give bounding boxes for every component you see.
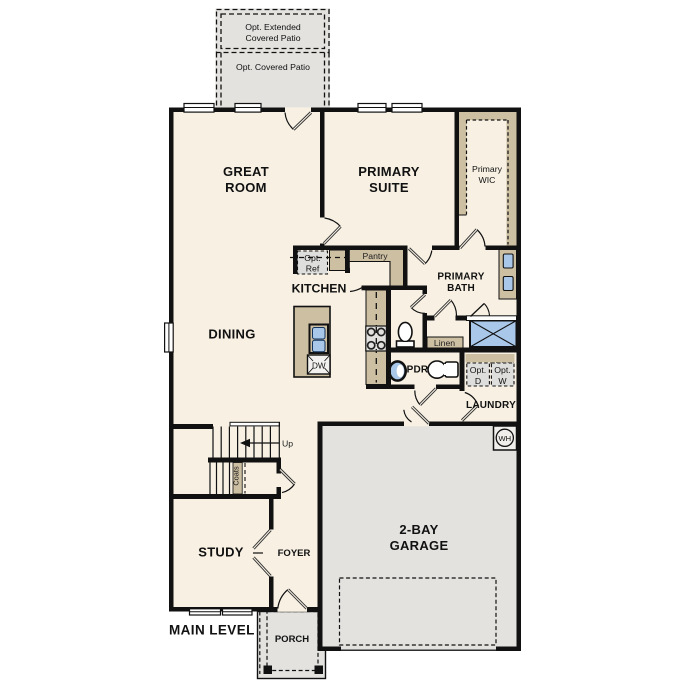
svg-text:Pantry: Pantry [362,251,388,261]
svg-text:ROOM: ROOM [225,180,267,195]
svg-text:Linen: Linen [434,338,455,348]
svg-text:WH: WH [498,434,511,443]
svg-text:Opt.: Opt. [494,365,510,375]
svg-text:PRIMARY: PRIMARY [358,164,420,179]
svg-text:D: D [475,376,481,386]
svg-text:KITCHEN: KITCHEN [292,282,347,296]
svg-text:Coats: Coats [232,466,241,486]
svg-text:Opt. Covered Patio: Opt. Covered Patio [236,62,310,72]
svg-text:Up: Up [282,439,293,449]
svg-text:PDR: PDR [407,365,429,376]
svg-text:Opt.: Opt. [304,253,320,263]
svg-text:Covered Patio: Covered Patio [245,33,300,43]
svg-text:PORCH: PORCH [275,634,309,645]
svg-text:MAIN LEVEL: MAIN LEVEL [169,623,255,638]
svg-text:Opt. Extended: Opt. Extended [245,22,301,32]
svg-text:Ref: Ref [306,264,320,274]
svg-text:STUDY: STUDY [198,545,244,560]
svg-text:GREAT: GREAT [223,164,269,179]
svg-text:FOYER: FOYER [278,548,311,559]
svg-text:BATH: BATH [447,283,475,294]
svg-text:WIC: WIC [479,175,496,185]
svg-text:LAUNDRY: LAUNDRY [466,400,516,411]
svg-text:DINING: DINING [208,327,255,342]
svg-text:W: W [498,376,507,386]
svg-text:DW: DW [312,362,326,371]
svg-text:SUITE: SUITE [369,180,409,195]
svg-text:PRIMARY: PRIMARY [437,272,484,283]
svg-text:Opt.: Opt. [470,365,486,375]
svg-text:Primary: Primary [472,164,503,174]
svg-text:GARAGE: GARAGE [390,538,449,553]
svg-text:2-BAY: 2-BAY [399,522,438,537]
